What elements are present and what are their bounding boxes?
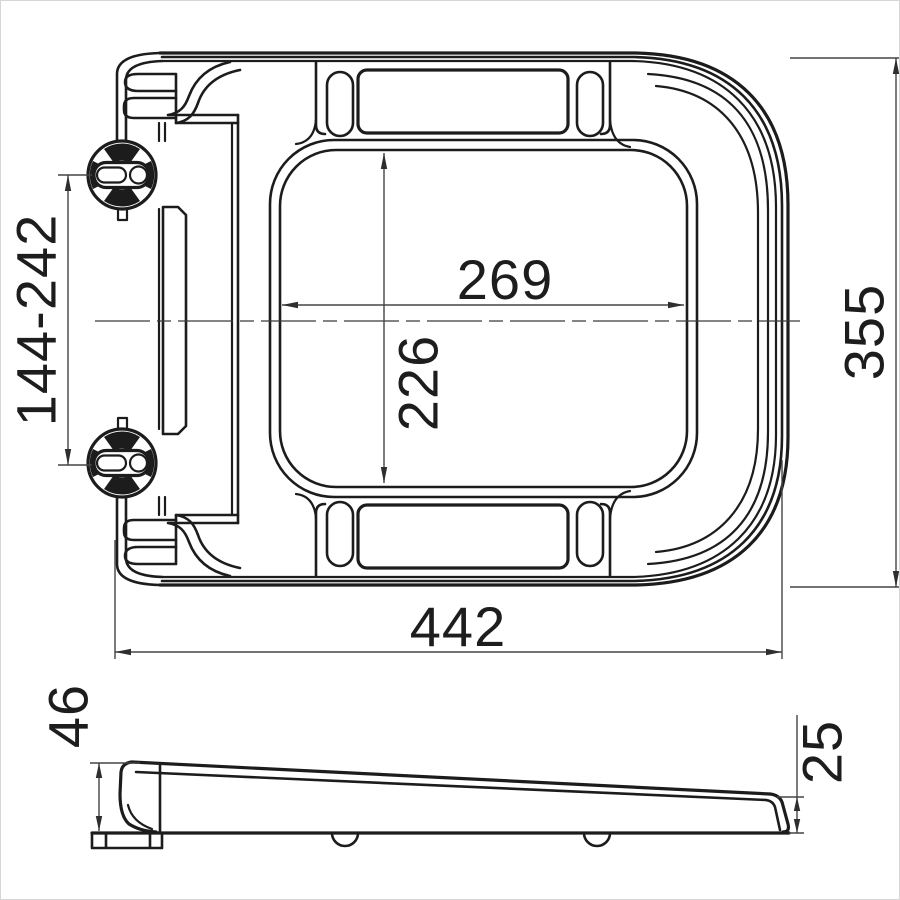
technical-drawing: 144-242 269 226 355 442: [0, 0, 900, 900]
hinge-recess-bottom: [296, 491, 630, 576]
dimension-front-height: 25: [777, 715, 854, 833]
dimension-rear-height: 46: [37, 684, 140, 831]
bumper-left: [332, 833, 358, 846]
dim-label-overall-depth: 355: [833, 284, 896, 380]
seat-top-view: 144-242 269 226 355 442: [5, 53, 900, 659]
dim-label-inner-cutout-width: 269: [457, 248, 553, 311]
hinge-recess-top: [296, 62, 630, 147]
dimension-inner-cutout-depth: 226: [381, 153, 450, 483]
dimension-overall-depth: 355: [790, 58, 900, 587]
seat-side-view: 46 25: [37, 684, 854, 848]
seat-profile: [92, 762, 789, 848]
dim-label-overall-width: 442: [410, 595, 506, 658]
dim-label-rear-height: 46: [37, 684, 100, 748]
dim-label-hinge-hole-spacing: 144-242: [5, 214, 68, 427]
mounting-arm-top: [88, 53, 240, 220]
hinge-foot: [92, 833, 162, 848]
bumper-right: [584, 833, 610, 846]
mounting-arm-bottom: [88, 418, 240, 585]
dim-label-inner-cutout-depth: 226: [387, 335, 450, 431]
dimension-inner-cutout-width: 269: [282, 248, 684, 311]
seat-inner-cutout: [270, 140, 697, 497]
drawing-canvas: 144-242 269 226 355 442: [0, 0, 900, 900]
dimension-hinge-hole-spacing: 144-242: [5, 175, 92, 465]
dim-label-front-height: 25: [791, 720, 854, 784]
